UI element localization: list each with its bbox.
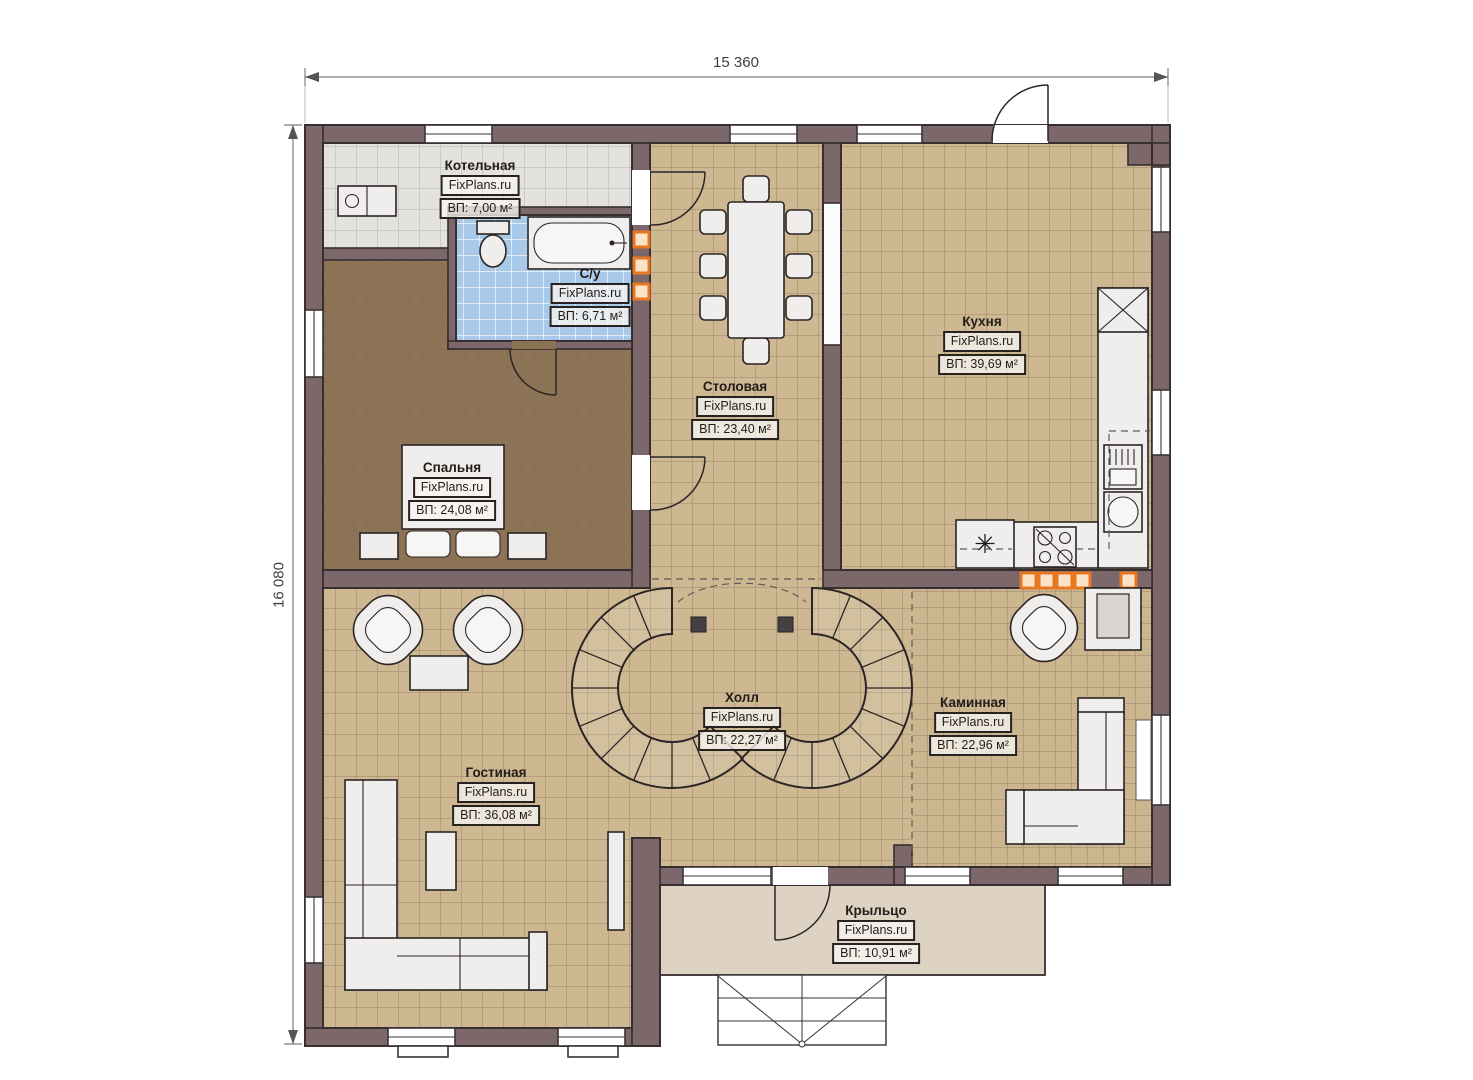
room-label-bedroom: Спальня FixPlans.ru ВП: 24,08 м² [408, 460, 496, 521]
dining-chair [700, 254, 726, 278]
room-name: Спальня [408, 460, 496, 475]
window [905, 867, 970, 885]
window [1058, 867, 1123, 885]
room-area: ВП: 23,40 м² [691, 419, 779, 440]
dimension-width-label: 15 360 [713, 54, 759, 71]
bedroom-door-opening [632, 455, 650, 510]
window [730, 125, 797, 143]
room-name: Крыльцо [832, 903, 920, 918]
wall-boiler-divider [323, 248, 458, 260]
flue-marker [1075, 573, 1090, 588]
window-sill [398, 1046, 448, 1057]
wall-bath-left [448, 207, 456, 349]
dining-chair [700, 296, 726, 320]
window [388, 1028, 455, 1046]
flue-marker [634, 258, 649, 273]
dining-chair [700, 210, 726, 234]
room-name: Холл [698, 690, 786, 705]
wall-corner-step [1128, 143, 1170, 165]
wall-c-vertical [823, 345, 841, 570]
room-area: ВП: 10,91 м² [832, 943, 920, 964]
window [1152, 390, 1170, 455]
pillow [406, 531, 450, 557]
stair-post [691, 617, 706, 632]
window [558, 1028, 625, 1046]
wall-kitchen-bottom [823, 570, 1152, 588]
room-brand: FixPlans.ru [837, 920, 916, 941]
freezer: ✳ [956, 520, 1014, 568]
plan-drawing: ✳ [0, 0, 1473, 1080]
flue-marker [1021, 573, 1036, 588]
room-brand: FixPlans.ru [441, 175, 520, 196]
dining-chair [743, 338, 769, 364]
room-name: Кухня [938, 314, 1026, 329]
pillow [456, 531, 500, 557]
room-label-dining: Столовая FixPlans.ru ВП: 23,40 м² [691, 379, 779, 440]
window [305, 897, 323, 963]
flue-marker [1039, 573, 1054, 588]
room-label-fireplace: Каминная FixPlans.ru ВП: 22,96 м² [929, 695, 1017, 756]
room-area: ВП: 24,08 м² [408, 500, 496, 521]
flue-marker [1121, 573, 1136, 588]
room-label-porch: Крыльцо FixPlans.ru ВП: 10,91 м² [832, 903, 920, 964]
room-brand: FixPlans.ru [696, 396, 775, 417]
fireplace [1085, 588, 1141, 650]
toilet [477, 221, 509, 267]
boiler-equipment [338, 186, 396, 216]
room-brand: FixPlans.ru [943, 331, 1022, 352]
room-brand: FixPlans.ru [457, 782, 536, 803]
window [1152, 715, 1170, 805]
room-area: ВП: 36,08 м² [452, 805, 540, 826]
window [857, 125, 922, 143]
bathroom-door-opening [512, 341, 556, 349]
window-sill [568, 1046, 618, 1057]
coffee-table [426, 832, 456, 890]
room-area: ВП: 7,00 м² [440, 198, 521, 219]
room-label-living: Гостиная FixPlans.ru ВП: 36,08 м² [452, 765, 540, 826]
flue-marker [1057, 573, 1072, 588]
stair-post [778, 617, 793, 632]
entry-door-opening-top [993, 125, 1048, 143]
room-area: ВП: 6,71 м² [550, 306, 631, 327]
wall-stub-living [632, 838, 660, 1046]
flue-marker [634, 232, 649, 247]
side-table [410, 656, 468, 690]
freezer-icon: ✳ [974, 529, 996, 559]
room-area: ВП: 22,96 м² [929, 735, 1017, 756]
wall-c-top [823, 143, 841, 203]
room-brand: FixPlans.ru [413, 477, 492, 498]
room-name: С/у [550, 266, 631, 281]
dining-chair [786, 254, 812, 278]
nightstand [508, 533, 546, 559]
room-name: Котельная [440, 158, 521, 173]
flue-marker [634, 284, 649, 299]
nightstand [360, 533, 398, 559]
room-brand: FixPlans.ru [703, 707, 782, 728]
window [683, 867, 771, 885]
room-brand: FixPlans.ru [934, 712, 1013, 733]
dining-hall-opening [651, 571, 822, 589]
dining-chair [786, 296, 812, 320]
fridge [1098, 288, 1148, 332]
room-name: Каминная [929, 695, 1017, 710]
room-label-boiler: Котельная FixPlans.ru ВП: 7,00 м² [440, 158, 521, 219]
dishwasher [1104, 445, 1142, 489]
stove [1034, 527, 1076, 567]
floor-plan-canvas: ✳ [0, 0, 1473, 1080]
dining-table [728, 202, 784, 338]
sink [1104, 492, 1142, 532]
window [305, 310, 323, 377]
porch-door-opening [773, 867, 828, 885]
window-niche [1136, 720, 1151, 800]
room-name: Столовая [691, 379, 779, 394]
dining-chair [786, 210, 812, 234]
porch-steps [718, 975, 886, 1047]
dimension-height-label: 16 080 [271, 562, 288, 608]
room-area: ВП: 22,27 м² [698, 730, 786, 751]
room-label-kitchen: Кухня FixPlans.ru ВП: 39,69 м² [938, 314, 1026, 375]
boiler-door-opening [632, 170, 650, 225]
bathtub [528, 217, 630, 269]
window [425, 125, 492, 143]
room-name: Гостиная [452, 765, 540, 780]
dining-chair [743, 176, 769, 202]
room-area: ВП: 39,69 м² [938, 354, 1026, 375]
room-brand: FixPlans.ru [551, 283, 630, 304]
window [1152, 167, 1170, 232]
tv-stand [608, 832, 624, 930]
wall-bedroom-bottom [323, 570, 650, 588]
room-label-hall: Холл FixPlans.ru ВП: 22,27 м² [698, 690, 786, 751]
room-label-bathroom: С/у FixPlans.ru ВП: 6,71 м² [550, 266, 631, 327]
